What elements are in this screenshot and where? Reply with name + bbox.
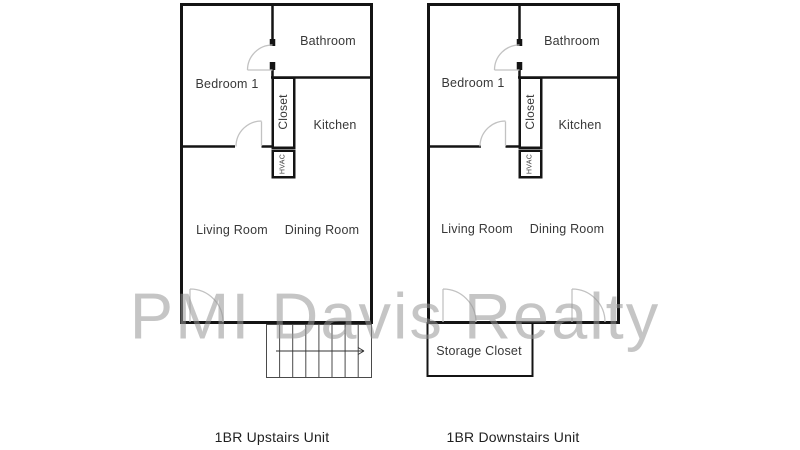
- upstairs-unit-plan: [180, 3, 372, 378]
- upstairs-hvac-label: HVAC: [280, 154, 287, 174]
- downstairs-hvac-label: HVAC: [527, 154, 534, 174]
- door-swing-arc: [190, 289, 223, 322]
- stair-direction-arrow: [276, 348, 364, 355]
- downstairs-kitchen-label: Kitchen: [558, 118, 601, 132]
- downstairs-bedroom-label: Bedroom 1: [442, 76, 505, 90]
- door-swing-arc: [443, 289, 476, 322]
- downstairs-closet-label: Closet: [523, 94, 537, 129]
- floorplan-drawing: [0, 0, 800, 450]
- door-swing-arc: [480, 121, 506, 147]
- door-swing-arc: [248, 45, 273, 70]
- upstairs-living-room-label: Living Room: [196, 223, 268, 237]
- downstairs-living-room-label: Living Room: [441, 222, 513, 236]
- downstairs-storage-closet-label: Storage Closet: [436, 344, 521, 358]
- downstairs-unit-caption: 1BR Downstairs Unit: [447, 429, 580, 445]
- floorplan-canvas: Bathroom Bedroom 1 Closet Kitchen HVAC L…: [0, 0, 800, 450]
- upstairs-bedroom-label: Bedroom 1: [196, 77, 259, 91]
- upstairs-unit-caption: 1BR Upstairs Unit: [215, 429, 330, 445]
- door-swing-arc: [572, 289, 605, 322]
- door-swing-arc: [495, 45, 520, 70]
- upstairs-closet-label: Closet: [276, 94, 290, 129]
- downstairs-dining-room-label: Dining Room: [530, 222, 604, 236]
- door-jamb: [517, 62, 523, 70]
- upstairs-bathroom-label: Bathroom: [300, 34, 356, 48]
- door-jamb: [270, 62, 276, 70]
- upstairs-dining-room-label: Dining Room: [285, 223, 359, 237]
- staircase: [267, 325, 372, 378]
- door-swing-arc: [236, 121, 262, 147]
- downstairs-unit-plan: [427, 3, 619, 376]
- upstairs-kitchen-label: Kitchen: [313, 118, 356, 132]
- downstairs-bathroom-label: Bathroom: [544, 34, 600, 48]
